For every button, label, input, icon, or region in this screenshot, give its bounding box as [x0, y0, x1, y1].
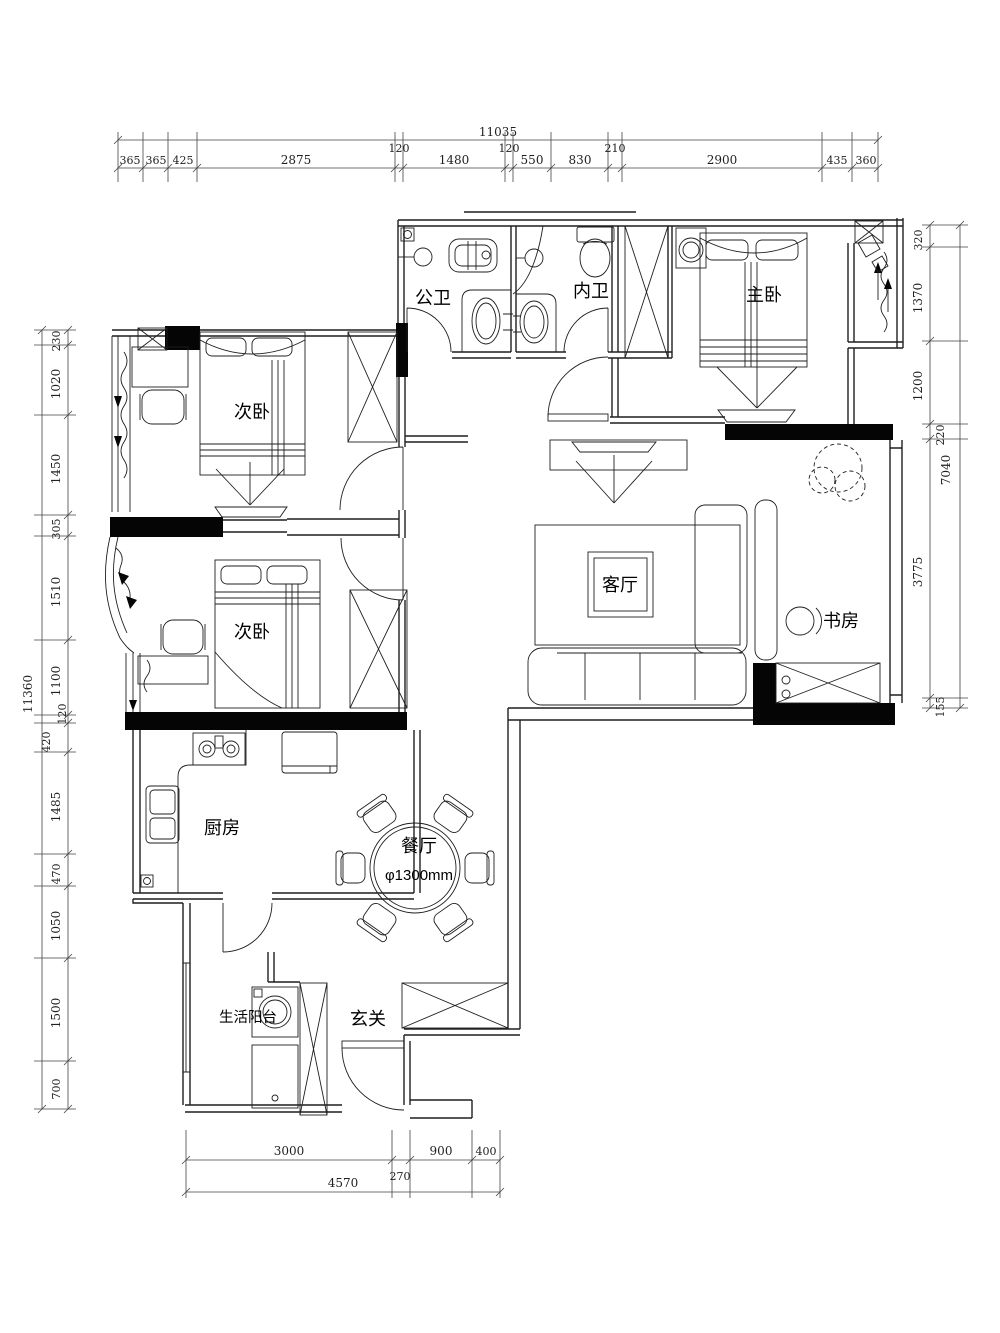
- washer-panel: [254, 989, 262, 997]
- wardrobe1-cross: [348, 332, 397, 442]
- kitchen-sink-bowl-2: [150, 818, 175, 839]
- dining-chair-2: [356, 793, 400, 836]
- balcony-entry-furniture: [252, 983, 508, 1115]
- wall-between-bedrooms: [110, 517, 223, 537]
- chair2-arms: [161, 624, 205, 650]
- dim-left-seg-8: 1485: [49, 792, 63, 823]
- bathtub-drain: [482, 251, 490, 259]
- dining-chair-1: [430, 793, 474, 836]
- dim-top-seg-2: 425: [173, 154, 194, 167]
- sofa-seat-lines: [557, 653, 742, 700]
- stove-burner-1b: [203, 745, 211, 753]
- dim-bottom-seg-3: 400: [476, 1145, 497, 1158]
- balcony-cabinet-knob: [272, 1095, 278, 1101]
- bed1-arrow: [216, 462, 284, 505]
- label-living-room: 客厅: [602, 575, 638, 595]
- label-dining-diameter: φ1300mm: [385, 867, 453, 884]
- fridge-icon: [282, 732, 337, 773]
- chair2: [163, 620, 203, 654]
- walls: [110, 212, 903, 1118]
- sink-inner-2: [524, 306, 544, 338]
- drying-balcony: [855, 221, 888, 272]
- bed-master-sill: [718, 410, 795, 422]
- study-chair-back: [816, 608, 822, 634]
- dim-right-seg-5: 155: [934, 697, 947, 718]
- dim-left-seg-7: 420: [40, 732, 53, 753]
- bed2-pillow-2: [267, 566, 307, 584]
- dim-right-total: 7040: [939, 455, 953, 486]
- room-labels: 公卫 内卫 主卧 次卧 次卧 客厅 书房 厨房 餐厅 φ1300mm 生活阳台 …: [204, 281, 859, 1029]
- stove-burner-2: [223, 741, 239, 757]
- dining-chair-3: [336, 851, 365, 885]
- dimension-labels: 11035 365 365 425 2875 120 1480 120 550 …: [21, 125, 953, 1190]
- label-entry: 玄关: [350, 1009, 386, 1029]
- dim-top-seg-1: 365: [146, 154, 167, 167]
- dim-top-seg-5: 1480: [439, 153, 470, 167]
- kitchen-fixtures: [141, 730, 337, 893]
- window-master-balcony-arrows: [878, 272, 888, 312]
- entry-divider-cross: [300, 983, 327, 1115]
- dim-left-total: 11360: [21, 675, 35, 713]
- dim-left-seg-4: 1510: [49, 577, 63, 608]
- label-bedroom-lower: 次卧: [234, 622, 270, 642]
- dim-left-seg-0: 230: [50, 331, 63, 352]
- window-arrow-5: [129, 700, 137, 711]
- dim-bottom-seg-1: 270: [390, 1170, 411, 1183]
- dim-left-seg-11: 1500: [49, 998, 63, 1029]
- label-service-balcony: 生活阳台: [219, 1009, 277, 1026]
- sofa-chaise: [695, 505, 747, 653]
- fridge-lines: [282, 766, 337, 773]
- wall-master-south: [725, 424, 893, 440]
- dim-top-seg-12: 360: [856, 154, 877, 167]
- dim-left-seg-5: 1100: [49, 666, 63, 697]
- chair1: [142, 390, 184, 424]
- kitchen-drain: [141, 875, 153, 887]
- chair1-arms: [140, 394, 186, 420]
- window-arrow-7: [884, 278, 892, 289]
- toilet-tank: [577, 227, 614, 242]
- window-arrow-3: [118, 572, 129, 585]
- toilet-bowl-icon: [580, 239, 610, 277]
- label-dining-room: 餐厅: [401, 836, 437, 856]
- dim-right-seg-4: 3775: [911, 557, 925, 588]
- dining-chair-6: [430, 900, 474, 943]
- kitchen-counter: [178, 730, 246, 893]
- dim-left-seg-12: 700: [50, 1079, 63, 1100]
- console-outline: [550, 440, 687, 470]
- sink-inner-1: [476, 303, 496, 339]
- dim-top-seg-10: 2900: [707, 153, 738, 167]
- dim-top-seg-9: 210: [605, 142, 626, 155]
- dim-left-extension-lines: [34, 330, 76, 1109]
- study-dots-1: [782, 676, 790, 684]
- dim-top-seg-3: 2875: [281, 153, 312, 167]
- dim-top-seg-6: 120: [499, 142, 520, 155]
- dim-bottom-seg-2: 900: [430, 1144, 453, 1158]
- door-kitchen: [223, 903, 272, 952]
- balcony-corner-cross: [855, 221, 883, 243]
- washer-drum-1b: [683, 242, 699, 258]
- study-cabinet-cross: [776, 663, 880, 703]
- label-study: 书房: [823, 611, 859, 631]
- dim-top-extension-lines: [118, 132, 878, 182]
- window-arrow-2: [114, 436, 122, 448]
- floor-drain-icon: [401, 228, 414, 241]
- window-arrow-1: [114, 396, 122, 408]
- door-ensuite-bath: [564, 308, 608, 352]
- stove-icon: [193, 733, 245, 765]
- dimension-lines: [34, 132, 968, 1198]
- window-balcony-left: [183, 963, 190, 1072]
- dim-left-seg-3: 305: [50, 519, 63, 540]
- kitchen-sink-bowl-1: [150, 790, 175, 814]
- label-master-bedroom: 主卧: [746, 285, 782, 305]
- wall-study-bottom: [753, 703, 895, 725]
- wall-top-section: [398, 212, 903, 424]
- hall-console: [550, 440, 687, 503]
- dim-bottom-seg-0: 3000: [274, 1144, 305, 1158]
- dim-bottom-total: 4570: [328, 1176, 359, 1190]
- hanging-clothes-icon: [858, 235, 888, 272]
- door-leaf-entry: [342, 1041, 404, 1048]
- floor-plan-canvas: 11035 365 365 425 2875 120 1480 120 550 …: [0, 0, 1000, 1333]
- label-kitchen: 厨房: [204, 818, 240, 838]
- shower-screen-curve: [513, 226, 543, 294]
- bed1-pillow-2: [252, 338, 292, 356]
- wall-entry-corridor: [183, 708, 755, 1118]
- dim-left-seg-10: 1050: [49, 911, 63, 942]
- dim-left-seg-9: 470: [50, 864, 63, 885]
- label-public-bath: 公卫: [415, 288, 451, 308]
- console-mirror-bar: [572, 442, 656, 452]
- bathtub-inner: [455, 245, 491, 266]
- dining-chair-5: [356, 900, 400, 943]
- window-bay-bedroom1-curtain: [121, 352, 127, 478]
- wall-column-bedroom1-top: [165, 326, 200, 350]
- door-public-bath: [407, 308, 451, 352]
- duct-shaft: [625, 226, 668, 358]
- dim-left-seg-1: 1020: [49, 369, 63, 400]
- bed-master-pillow-1: [706, 240, 748, 260]
- label-ensuite-bath: 内卫: [573, 281, 609, 301]
- dim-left-seg-2: 1450: [49, 454, 63, 485]
- window-master-balcony-curtain: [881, 252, 887, 332]
- desk1: [132, 347, 188, 387]
- bed-master-arrow: [717, 367, 797, 408]
- kitchen-drain-c: [144, 878, 151, 885]
- dim-right-seg-1: 1370: [911, 283, 925, 314]
- shoe-cabinet-cross: [402, 983, 508, 1028]
- stove-burner-2b: [227, 745, 235, 753]
- stove-burner-1: [199, 741, 215, 757]
- bedroom2-furniture: [138, 560, 407, 708]
- desk2: [138, 656, 208, 684]
- bed2-lines: [215, 584, 320, 708]
- sofa-base: [528, 648, 746, 705]
- dim-top-seg-8: 830: [569, 153, 592, 167]
- vanity-counter-2: [516, 294, 556, 352]
- dim-right-seg-0: 320: [912, 230, 925, 251]
- bed2-pillow-1: [221, 566, 261, 584]
- door-master-bedroom: [548, 357, 608, 417]
- plant-icon: [809, 444, 865, 501]
- console-arrow: [576, 455, 652, 503]
- vanity-counter-1: [462, 290, 511, 352]
- doors: [223, 308, 608, 1110]
- door-entry-arc: [342, 1048, 404, 1110]
- label-bedroom-upper: 次卧: [234, 402, 270, 422]
- study-dots-2: [782, 690, 790, 698]
- stove-center: [215, 736, 223, 748]
- dim-right-seg-2: 1200: [911, 371, 925, 402]
- dim-top-total: 11035: [479, 125, 517, 139]
- shower-head-icon: [414, 248, 432, 266]
- wall-study: [890, 440, 902, 703]
- master-bed: [700, 233, 807, 422]
- dim-top-seg-0: 365: [120, 154, 141, 167]
- dim-top-seg-7: 550: [521, 153, 544, 167]
- shaft-cross: [625, 226, 668, 358]
- wall-kitchen-top-band: [125, 712, 407, 730]
- dim-top-seg-11: 435: [827, 154, 848, 167]
- wall-kitchen: [133, 730, 420, 903]
- washer-master-nook: [676, 228, 706, 268]
- door-bedroom1: [340, 447, 403, 510]
- chaise-screen: [755, 500, 777, 660]
- window-sill-bedroom1: [215, 507, 287, 517]
- dim-top-seg-4: 120: [389, 142, 410, 155]
- kitchen-sink: [146, 786, 179, 843]
- living-room-furniture: [528, 444, 865, 705]
- dim-right-seg-3: 220: [934, 425, 947, 446]
- wall-column-bath-left: [396, 323, 408, 377]
- dim-left-seg-6: 120: [56, 704, 69, 725]
- balcony-cabinet: [252, 1045, 298, 1108]
- door-leaf-master: [548, 414, 608, 421]
- window-arrow-4: [126, 596, 137, 609]
- study-chair: [786, 607, 814, 635]
- dining-chair-4: [465, 851, 494, 885]
- window-bay-bedroom2-curve: [105, 537, 140, 712]
